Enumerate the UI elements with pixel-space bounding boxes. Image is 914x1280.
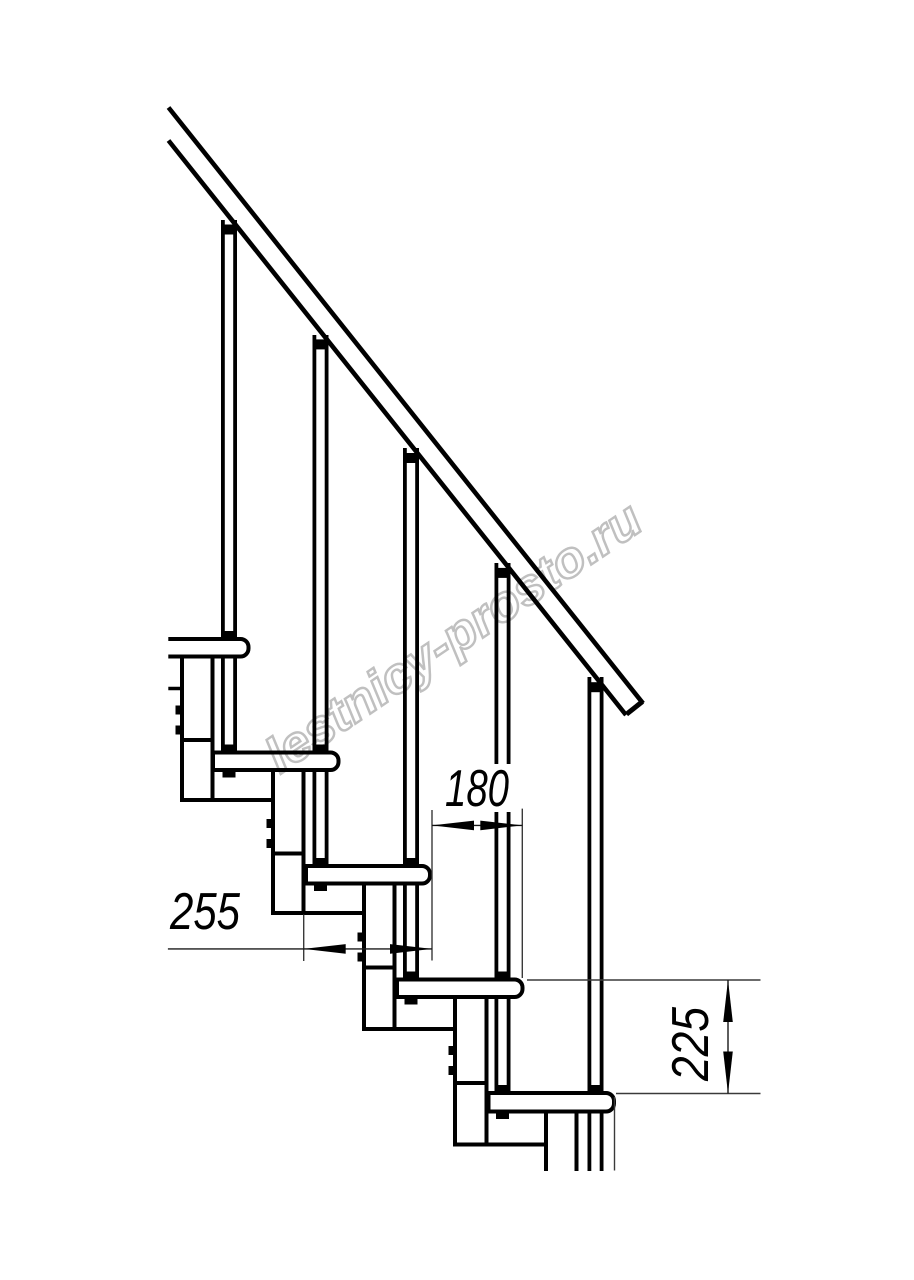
svg-text:255: 255	[169, 883, 241, 941]
svg-text:225: 225	[662, 1006, 720, 1082]
svg-text:180: 180	[445, 760, 509, 818]
